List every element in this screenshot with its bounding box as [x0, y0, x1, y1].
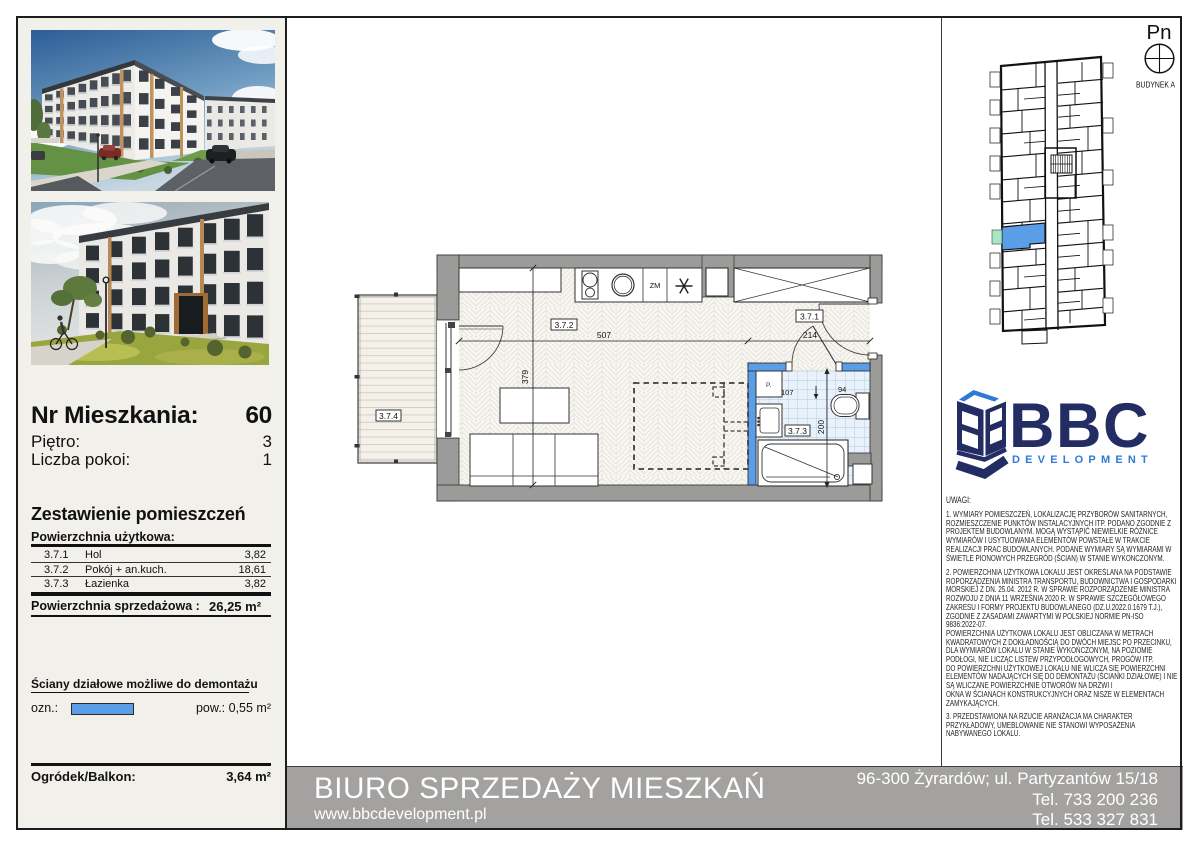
svg-text:3.7.2: 3.7.2: [555, 320, 574, 330]
svg-text:214: 214: [803, 330, 817, 340]
svg-text:507: 507: [597, 330, 611, 340]
svg-text:P.: P.: [766, 382, 771, 389]
svg-text:3.7.1: 3.7.1: [800, 312, 819, 322]
svg-text:Pn: Pn: [1146, 21, 1171, 44]
svg-text:BBC: BBC: [1009, 391, 1150, 461]
svg-text:379: 379: [520, 370, 530, 384]
svg-text:ZM: ZM: [650, 281, 661, 290]
svg-text:3.7.3: 3.7.3: [788, 426, 807, 436]
svg-text:107: 107: [781, 388, 794, 397]
svg-text:200: 200: [816, 420, 826, 434]
svg-text:DEVELOPMENT: DEVELOPMENT: [1012, 454, 1153, 466]
svg-text:BUDYNEK A: BUDYNEK A: [1136, 80, 1175, 90]
svg-text:3.7.4: 3.7.4: [379, 411, 398, 421]
svg-text:94: 94: [838, 385, 846, 394]
